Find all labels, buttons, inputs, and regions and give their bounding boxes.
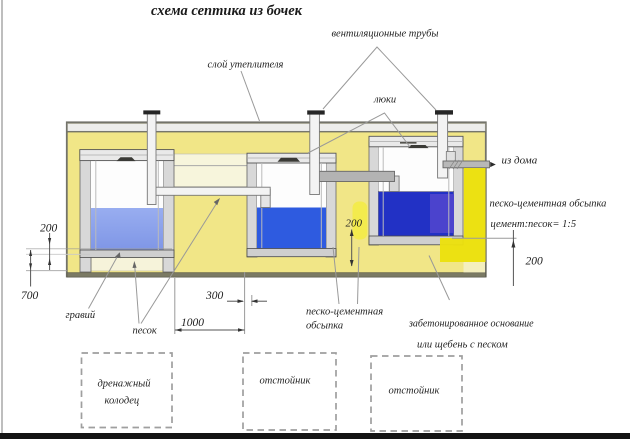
svg-text:дренажный: дренажный <box>98 379 152 390</box>
svg-text:200: 200 <box>526 256 544 268</box>
svg-text:схема септика из бочек: схема септика из бочек <box>151 3 303 19</box>
svg-text:забетонированное основание: забетонированное основание <box>408 319 534 330</box>
svg-text:или щебень с песком: или щебень с песком <box>417 340 508 351</box>
svg-text:колодец: колодец <box>105 396 140 407</box>
svg-text:отстойник: отстойник <box>260 376 311 387</box>
svg-text:200: 200 <box>40 223 58 235</box>
svg-text:обсыпка: обсыпка <box>306 321 343 332</box>
svg-text:вентиляционные трубы: вентиляционные трубы <box>332 29 439 40</box>
svg-text:отстойник: отстойник <box>389 386 440 397</box>
svg-text:слой утеплителя: слой утеплителя <box>208 60 284 71</box>
svg-text:песок: песок <box>133 326 157 337</box>
svg-text:из дома: из дома <box>502 155 538 167</box>
svg-text:люки: люки <box>373 95 396 106</box>
svg-text:цемент:песок= 1:5: цемент:песок= 1:5 <box>491 219 577 230</box>
svg-text:700: 700 <box>21 290 39 302</box>
svg-text:300: 300 <box>205 290 224 302</box>
svg-text:песко-цементная: песко-цементная <box>306 307 383 318</box>
svg-text:песко-цементная обсыпка: песко-цементная обсыпка <box>490 199 607 210</box>
svg-text:200: 200 <box>346 218 363 230</box>
svg-text:1000: 1000 <box>181 317 204 329</box>
svg-text:гравий: гравий <box>66 310 96 321</box>
